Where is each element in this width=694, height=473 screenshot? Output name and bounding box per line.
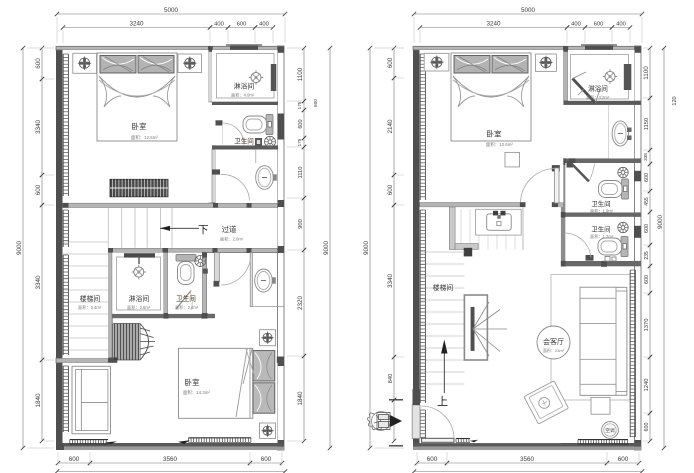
svg-text:600: 600 — [69, 456, 80, 463]
svg-text:600: 600 — [35, 58, 42, 69]
svg-text:2140: 2140 — [387, 119, 394, 134]
svg-text:120: 120 — [672, 96, 678, 105]
svg-text:400: 400 — [571, 22, 581, 28]
svg-text:卫生间: 卫生间 — [591, 225, 610, 234]
svg-text:面积：4.0m²: 面积：4.0m² — [231, 92, 255, 99]
svg-text:卫生间: 卫生间 — [176, 294, 196, 303]
svg-text:1240: 1240 — [644, 379, 650, 392]
svg-text:面积：1.9m²: 面积：1.9m² — [590, 208, 614, 215]
svg-text:600: 600 — [387, 184, 394, 195]
svg-text:175: 175 — [297, 138, 302, 146]
svg-text:900: 900 — [298, 219, 304, 229]
svg-text:840: 840 — [388, 374, 394, 384]
svg-text:3560: 3560 — [520, 456, 535, 463]
svg-text:600: 600 — [35, 184, 42, 195]
svg-text:600: 600 — [261, 456, 272, 463]
svg-text:455: 455 — [644, 197, 650, 206]
svg-text:面积：2.4m²: 面积：2.4m² — [175, 304, 199, 311]
svg-text:600: 600 — [298, 119, 304, 128]
svg-text:面积：2.0m²: 面积：2.0m² — [220, 236, 244, 243]
svg-text:600: 600 — [387, 57, 394, 68]
svg-text:面积：12.6m²: 面积：12.6m² — [486, 141, 513, 148]
svg-text:600: 600 — [618, 456, 629, 463]
svg-text:1100: 1100 — [643, 66, 650, 80]
svg-text:175: 175 — [297, 101, 302, 109]
svg-text:9000: 9000 — [323, 241, 330, 256]
svg-text:400: 400 — [259, 22, 269, 28]
svg-text:600: 600 — [644, 423, 650, 432]
svg-text:600: 600 — [644, 275, 650, 284]
svg-text:9000: 9000 — [657, 215, 664, 230]
svg-text:面积：23m²: 面积：23m² — [543, 347, 565, 353]
svg-text:400: 400 — [214, 22, 224, 28]
svg-text:面积：3.4m²: 面积：3.4m² — [78, 304, 102, 311]
svg-text:338: 338 — [643, 153, 648, 161]
svg-text:面积：14.3m²: 面积：14.3m² — [183, 389, 210, 396]
svg-text:1840: 1840 — [35, 393, 42, 408]
svg-text:卧室: 卧室 — [184, 377, 200, 387]
svg-text:3240: 3240 — [486, 21, 501, 28]
svg-text:3340: 3340 — [35, 275, 42, 290]
svg-text:面积：3.2m²: 面积：3.2m² — [586, 94, 610, 101]
svg-text:卫生间: 卫生间 — [234, 137, 254, 146]
svg-text:600: 600 — [427, 456, 438, 463]
svg-text:卧室: 卧室 — [486, 129, 502, 139]
svg-text:淋浴间: 淋浴间 — [129, 294, 150, 303]
svg-text:1370: 1370 — [644, 319, 650, 332]
svg-text:235: 235 — [644, 251, 650, 260]
svg-text:楼梯间: 楼梯间 — [80, 294, 101, 303]
svg-text:9000: 9000 — [16, 241, 23, 256]
svg-text:会客厅: 会客厅 — [543, 337, 564, 346]
svg-text:卧室: 卧室 — [131, 121, 147, 131]
svg-text:600: 600 — [644, 173, 650, 182]
svg-text:600: 600 — [313, 99, 318, 107]
svg-text:淋浴间: 淋浴间 — [588, 84, 608, 93]
svg-text:5000: 5000 — [521, 7, 536, 14]
svg-text:上: 上 — [437, 395, 448, 408]
svg-text:2320: 2320 — [297, 296, 304, 311]
svg-text:1110: 1110 — [298, 166, 304, 178]
svg-text:卫生间: 卫生间 — [591, 199, 610, 208]
svg-text:5000: 5000 — [164, 7, 179, 14]
svg-text:3340: 3340 — [35, 120, 42, 135]
svg-text:淋浴间: 淋浴间 — [234, 82, 255, 91]
svg-text:空调: 空调 — [605, 427, 615, 434]
svg-text:600: 600 — [594, 22, 604, 28]
svg-text:楼梯间: 楼梯间 — [433, 283, 454, 292]
svg-text:9000: 9000 — [363, 241, 370, 256]
svg-text:1840: 1840 — [297, 391, 304, 406]
svg-text:400: 400 — [616, 22, 626, 28]
svg-text:3240: 3240 — [129, 21, 144, 28]
svg-text:下: 下 — [198, 224, 209, 236]
svg-text:3340: 3340 — [387, 274, 394, 289]
svg-text:1150: 1150 — [644, 118, 650, 130]
svg-text:过道: 过道 — [222, 225, 237, 234]
svg-text:1100: 1100 — [297, 67, 304, 81]
svg-text:面积：2.6m²: 面积：2.6m² — [127, 304, 151, 311]
svg-text:面积：12.5m²: 面积：12.5m² — [131, 134, 158, 141]
svg-text:600: 600 — [237, 22, 247, 28]
svg-text:3560: 3560 — [163, 456, 178, 463]
svg-text:600: 600 — [644, 224, 650, 233]
